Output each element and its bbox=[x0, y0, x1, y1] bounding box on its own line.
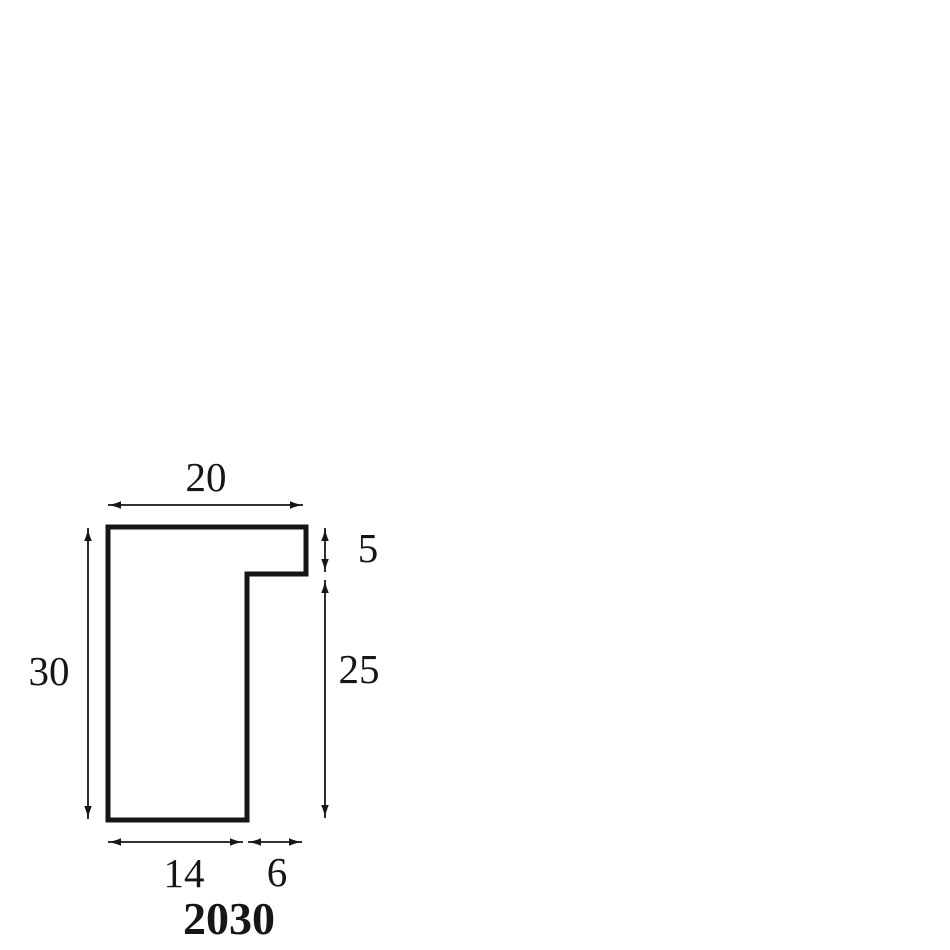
dimension-label-lower-right-height: 25 bbox=[339, 646, 380, 692]
profile-code: 2030 bbox=[183, 893, 275, 944]
profile-outline bbox=[108, 527, 306, 820]
dimension-top-width: 20 bbox=[108, 454, 303, 505]
dimension-left-height: 30 bbox=[29, 528, 89, 819]
dimension-label-bottom-left-width: 14 bbox=[164, 850, 205, 896]
diagram-canvas: 20 30 5 25 14 6 2030 bbox=[0, 0, 950, 950]
dimension-lower-right-height: 25 bbox=[325, 580, 380, 818]
dimension-label-upper-right-height: 5 bbox=[358, 525, 379, 571]
dimension-bottom-right-width: 6 bbox=[248, 842, 302, 895]
profile-diagram: 20 30 5 25 14 6 2030 bbox=[0, 0, 950, 950]
dimension-label-bottom-right-width: 6 bbox=[267, 849, 288, 895]
dimension-label-top-width: 20 bbox=[186, 454, 227, 500]
dimension-label-left-height: 30 bbox=[29, 648, 70, 694]
dimension-bottom-left-width: 14 bbox=[108, 842, 243, 896]
dimension-upper-right-height: 5 bbox=[325, 525, 378, 572]
